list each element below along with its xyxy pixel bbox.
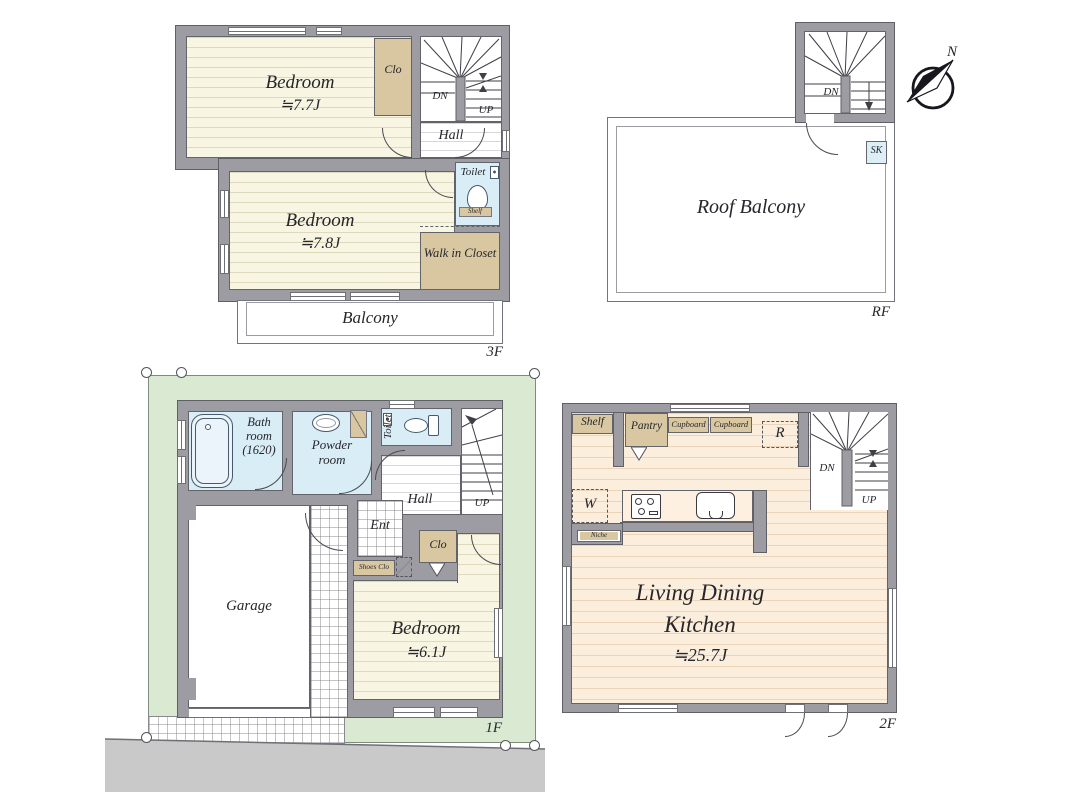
f2-window-bottom [618,704,678,713]
f3-window-left-2 [220,244,229,274]
f3-balcony-label: Balcony [300,308,440,327]
f2-up-label: UP [854,494,884,506]
f1-bedroom-label: Bedroom [351,618,501,639]
f2-ldk-label-1: Living Dining [625,580,775,606]
f3-bedroom1-label: Bedroom [225,72,375,93]
f1-toilet-tank-icon [428,415,439,436]
f1-garage-label: Garage [207,598,291,615]
f3-bedroom1-size: ≒7.7J [225,97,375,115]
f1-toilet-label: Toilet [383,410,397,444]
f2-floor-label: 2F [856,716,896,733]
stairs-icon [805,32,885,113]
f1-window-left-1 [177,420,186,450]
f2-stove-burner [635,498,642,505]
f3-floor-label: 3F [455,344,503,361]
f2-shelf-label: Shelf [572,416,613,429]
rf-door-gap [806,114,834,123]
f1-bathtub-drain [205,424,211,430]
f1-garage-pillar-2 [188,678,196,700]
rf-sk-label: SK [866,145,887,156]
f1-lot-marker [141,367,152,378]
f3-up-label: UP [472,104,500,116]
f1-lot-marker [141,732,152,743]
rf-dn-label: DN [816,86,846,98]
f1-window-left-2 [177,456,186,484]
f3-bedroom2-label: Bedroom [245,210,395,231]
f2-wall-stub-1 [613,412,624,467]
f2-sink-detail [709,511,723,519]
f2-balcony-door-arc-2 [828,713,848,737]
f2-stove-icon [631,494,661,519]
rf-stairs [804,31,886,114]
f2-balcony-door-arc-1 [785,713,805,737]
f1-lot-marker [176,367,187,378]
f2-fridge-label: R [762,425,798,442]
f1-hall-label: Hall [390,492,450,508]
f1-garage-pillar-1 [188,498,196,520]
f1-closet-chevron-icon [429,563,445,577]
f2-stove-burner [638,508,645,515]
f3-wic-label: Walk in Closet [422,246,498,260]
f2-window-left [562,566,571,626]
f2-niche-label: Niche [580,532,618,540]
f1-bedroom-61 [353,580,500,700]
f1-bathtub-inner [195,418,229,484]
f3-clo-label: Clo [374,63,412,76]
f2-sink-icon [696,492,735,519]
f1-lot-marker [529,740,540,751]
f3-closet [374,38,412,116]
f3-window-top-1 [228,27,306,35]
f3-handwash-icon [490,166,499,179]
f3-window-left-1 [220,190,229,218]
f3-hall-label: Hall [420,128,482,144]
f3-toilet-shelf-label: Shelf [456,208,494,216]
f3-bedroom2-size: ≒7.8J [245,235,395,253]
floor-plan-canvas: Bedroom ≒7.7J Clo DN UP Hall Toilet Shel… [0,0,1080,811]
f3-window-hall [502,130,510,152]
f2-window-right [888,588,897,668]
f2-counter-wall [620,522,767,532]
f1-powder-corner-shelf [350,410,367,438]
f1-window-toilet [389,400,415,409]
f1-entrance-label: Ent [357,518,403,534]
f2-balcony-door-gap-1 [785,704,805,713]
f1-window-bottom-1 [393,707,435,718]
f1-powder-label: Powder room [298,438,366,467]
f1-shoes-closet-wedge [396,557,412,577]
f3-walkin-closet [420,232,500,290]
f1-up-label: UP [466,497,498,509]
f1-garage-door [189,708,310,718]
f2-cupboard2-label: Cupboard [710,420,752,430]
compass-north-label: N [940,44,964,61]
f2-pantry-chevron-icon [631,447,647,461]
f2-ldk-size: ≒25.7J [625,645,775,665]
f3-toilet-label: Toilet [455,166,491,178]
f1-shoes-closet-label: Shoes Clo [353,563,395,571]
f2-cupboard1-label: Cupboard [668,420,709,430]
f1-bedroom-size: ≒6.1J [351,644,501,662]
f1-bathroom-label: Bath room (1620) [233,415,285,457]
f1-floor-label: 1F [462,720,502,737]
f1-window-bottom-2 [440,707,478,718]
f2-pantry-label: Pantry [625,420,668,433]
rf-floor-label: RF [850,304,890,321]
f2-stove-grill [649,511,658,515]
f2-window-top [670,404,750,412]
rf-roof-balcony-label: Roof Balcony [660,196,842,218]
f1-lot-marker [529,368,540,379]
f2-stove-burner [647,498,654,505]
f1-powder-sink-inner [316,418,336,428]
f2-wall-stub-2 [798,412,809,467]
f3-wic-dashed-line [420,226,500,227]
f1-closet-label: Clo [419,538,457,551]
compass-icon [903,52,967,118]
f2-dn-label: DN [812,462,842,474]
f2-balcony-door-gap-2 [828,704,848,713]
f1-toilet-bowl-icon [404,418,428,433]
f3-window-top-2 [316,27,342,35]
f1-powder-sink-icon [312,414,340,432]
f2-washer-label: W [572,496,608,513]
f2-ldk-label-2: Kitchen [625,612,775,638]
f3-dn-label: DN [426,90,454,102]
f1-lot-marker [500,740,511,751]
f2-counter-end-wall [753,490,767,553]
f1-bathtub-icon [191,414,233,488]
